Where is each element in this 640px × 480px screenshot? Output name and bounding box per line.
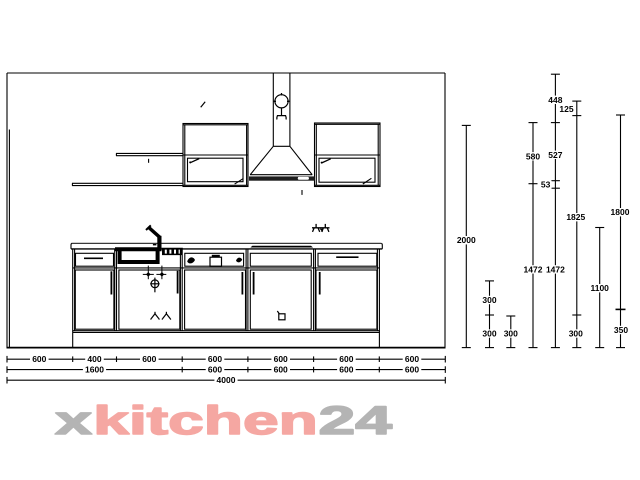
svg-text:1800: 1800 [611, 207, 630, 217]
svg-text:600: 600 [339, 365, 353, 375]
svg-text:600: 600 [142, 354, 156, 364]
svg-text:2000: 2000 [457, 235, 476, 245]
svg-text:1825: 1825 [566, 212, 585, 222]
svg-text:580: 580 [526, 151, 540, 161]
svg-text:300: 300 [482, 295, 496, 305]
svg-text:300: 300 [504, 329, 518, 339]
svg-text:600: 600 [405, 365, 419, 375]
svg-text:600: 600 [274, 354, 288, 364]
svg-text:4000: 4000 [217, 375, 236, 385]
svg-text:400: 400 [87, 354, 101, 364]
svg-text:600: 600 [208, 365, 222, 375]
svg-text:600: 600 [32, 354, 46, 364]
svg-text:1472: 1472 [546, 264, 565, 274]
svg-text:600: 600 [274, 365, 288, 375]
svg-text:600: 600 [405, 354, 419, 364]
svg-text:350: 350 [614, 325, 628, 335]
svg-text:1472: 1472 [524, 264, 543, 274]
svg-text:527: 527 [548, 150, 562, 160]
svg-text:600: 600 [339, 354, 353, 364]
svg-text:kitchen: kitchen [93, 399, 317, 443]
svg-text:300: 300 [569, 329, 583, 339]
svg-text:125: 125 [559, 104, 573, 114]
svg-text:1600: 1600 [85, 365, 104, 375]
svg-text:300: 300 [482, 329, 496, 339]
svg-text:24: 24 [319, 399, 394, 443]
svg-text:x: x [55, 399, 92, 443]
svg-text:600: 600 [208, 354, 222, 364]
svg-text:1100: 1100 [590, 283, 609, 293]
svg-text:53: 53 [541, 180, 551, 190]
